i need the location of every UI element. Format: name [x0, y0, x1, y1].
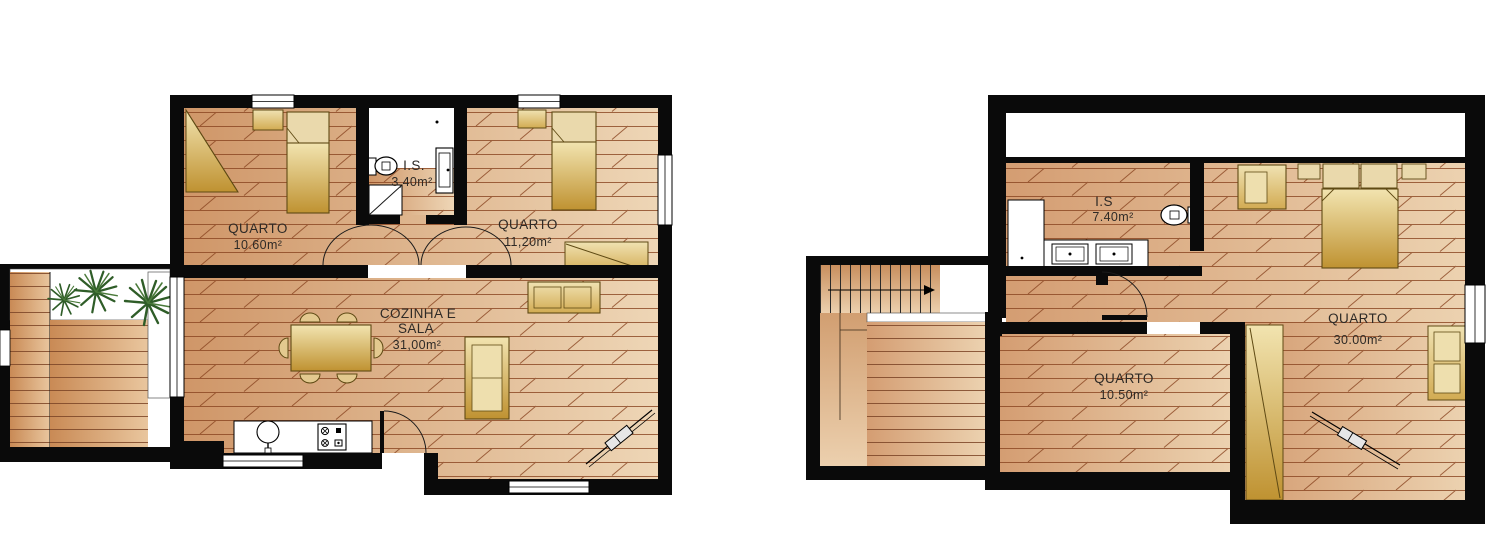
wall — [1190, 163, 1204, 251]
upper-floor-windows — [1465, 285, 1485, 343]
stairwell — [806, 256, 988, 480]
room-label: COZINHA E — [380, 306, 456, 321]
wall — [426, 215, 467, 224]
wall — [170, 265, 368, 278]
room-area: 10.60m² — [234, 238, 283, 252]
wall — [1096, 276, 1108, 285]
entrance-door-leaf — [380, 411, 384, 453]
wall — [356, 108, 369, 225]
wall — [1230, 322, 1245, 472]
floor-plan-drawing: QUARTO 10.60m² I.S. 3,40m² QUARTO 11,20m… — [0, 0, 1507, 557]
wall — [170, 95, 672, 108]
vanity-icon — [1044, 240, 1148, 268]
sink-icon — [436, 148, 453, 193]
sofa-icon — [465, 337, 509, 419]
kitchen-counter — [234, 421, 372, 453]
room-label: QUARTO — [498, 217, 558, 232]
room-label: QUARTO — [1094, 371, 1154, 386]
wall — [1243, 500, 1485, 524]
nightstand-icon — [1402, 164, 1426, 179]
room-label: QUARTO — [228, 221, 288, 236]
door-leaf — [1102, 315, 1147, 320]
shower-icon — [1008, 200, 1044, 268]
wall — [356, 215, 400, 224]
wall — [466, 265, 672, 278]
terrace-top-wall — [0, 264, 172, 269]
bed-icon — [287, 112, 329, 213]
wall — [454, 108, 467, 225]
wall — [985, 472, 1238, 490]
room-area: 10.50m² — [1100, 388, 1149, 402]
room-label: SALA — [398, 321, 434, 336]
stair-landing — [867, 313, 986, 322]
terrace-bottom-wall — [0, 447, 172, 462]
room-area: 7.40m² — [1092, 210, 1133, 224]
wall — [658, 95, 672, 485]
nightstand-icon — [1298, 164, 1320, 179]
bed-icon — [552, 112, 596, 210]
room-area: 31,00m² — [393, 338, 442, 352]
room-area: 30.00m² — [1334, 333, 1383, 347]
wall — [170, 95, 184, 277]
nightstand-icon — [253, 110, 283, 130]
wall — [988, 266, 1202, 276]
terrace — [0, 264, 172, 462]
sideboard-icon — [528, 282, 600, 313]
wall — [985, 313, 1000, 490]
sofa-icon — [1428, 326, 1466, 400]
dresser-icon — [1238, 165, 1286, 209]
wall — [988, 95, 1485, 113]
room-label: I.S — [1095, 194, 1113, 209]
wall — [988, 95, 1006, 318]
ground-floor-plan: QUARTO 10.60m² I.S. 3,40m² QUARTO 11,20m… — [0, 95, 672, 495]
upper-floor-plan: I.S 7.40m² QUARTO 30.00m² QUARTO 10.50m² — [806, 95, 1485, 524]
room-area: 3,40m² — [391, 175, 432, 189]
dining-table-icon — [291, 325, 371, 371]
tall-wardrobe-icon — [1246, 325, 1283, 500]
stove-icon — [318, 424, 346, 450]
toilet-icon — [368, 157, 397, 175]
terrace-window — [0, 330, 10, 366]
counter — [234, 421, 372, 453]
nightstand-icon — [518, 110, 546, 128]
room-label: I.S. — [403, 158, 425, 173]
room-label: QUARTO — [1328, 311, 1388, 326]
floor-plan-sheet: QUARTO 10.60m² I.S. 3,40m² QUARTO 11,20m… — [0, 0, 1507, 557]
room-area: 11,20m² — [504, 235, 552, 249]
attic-strip — [1006, 113, 1465, 159]
wall — [1000, 322, 1147, 334]
